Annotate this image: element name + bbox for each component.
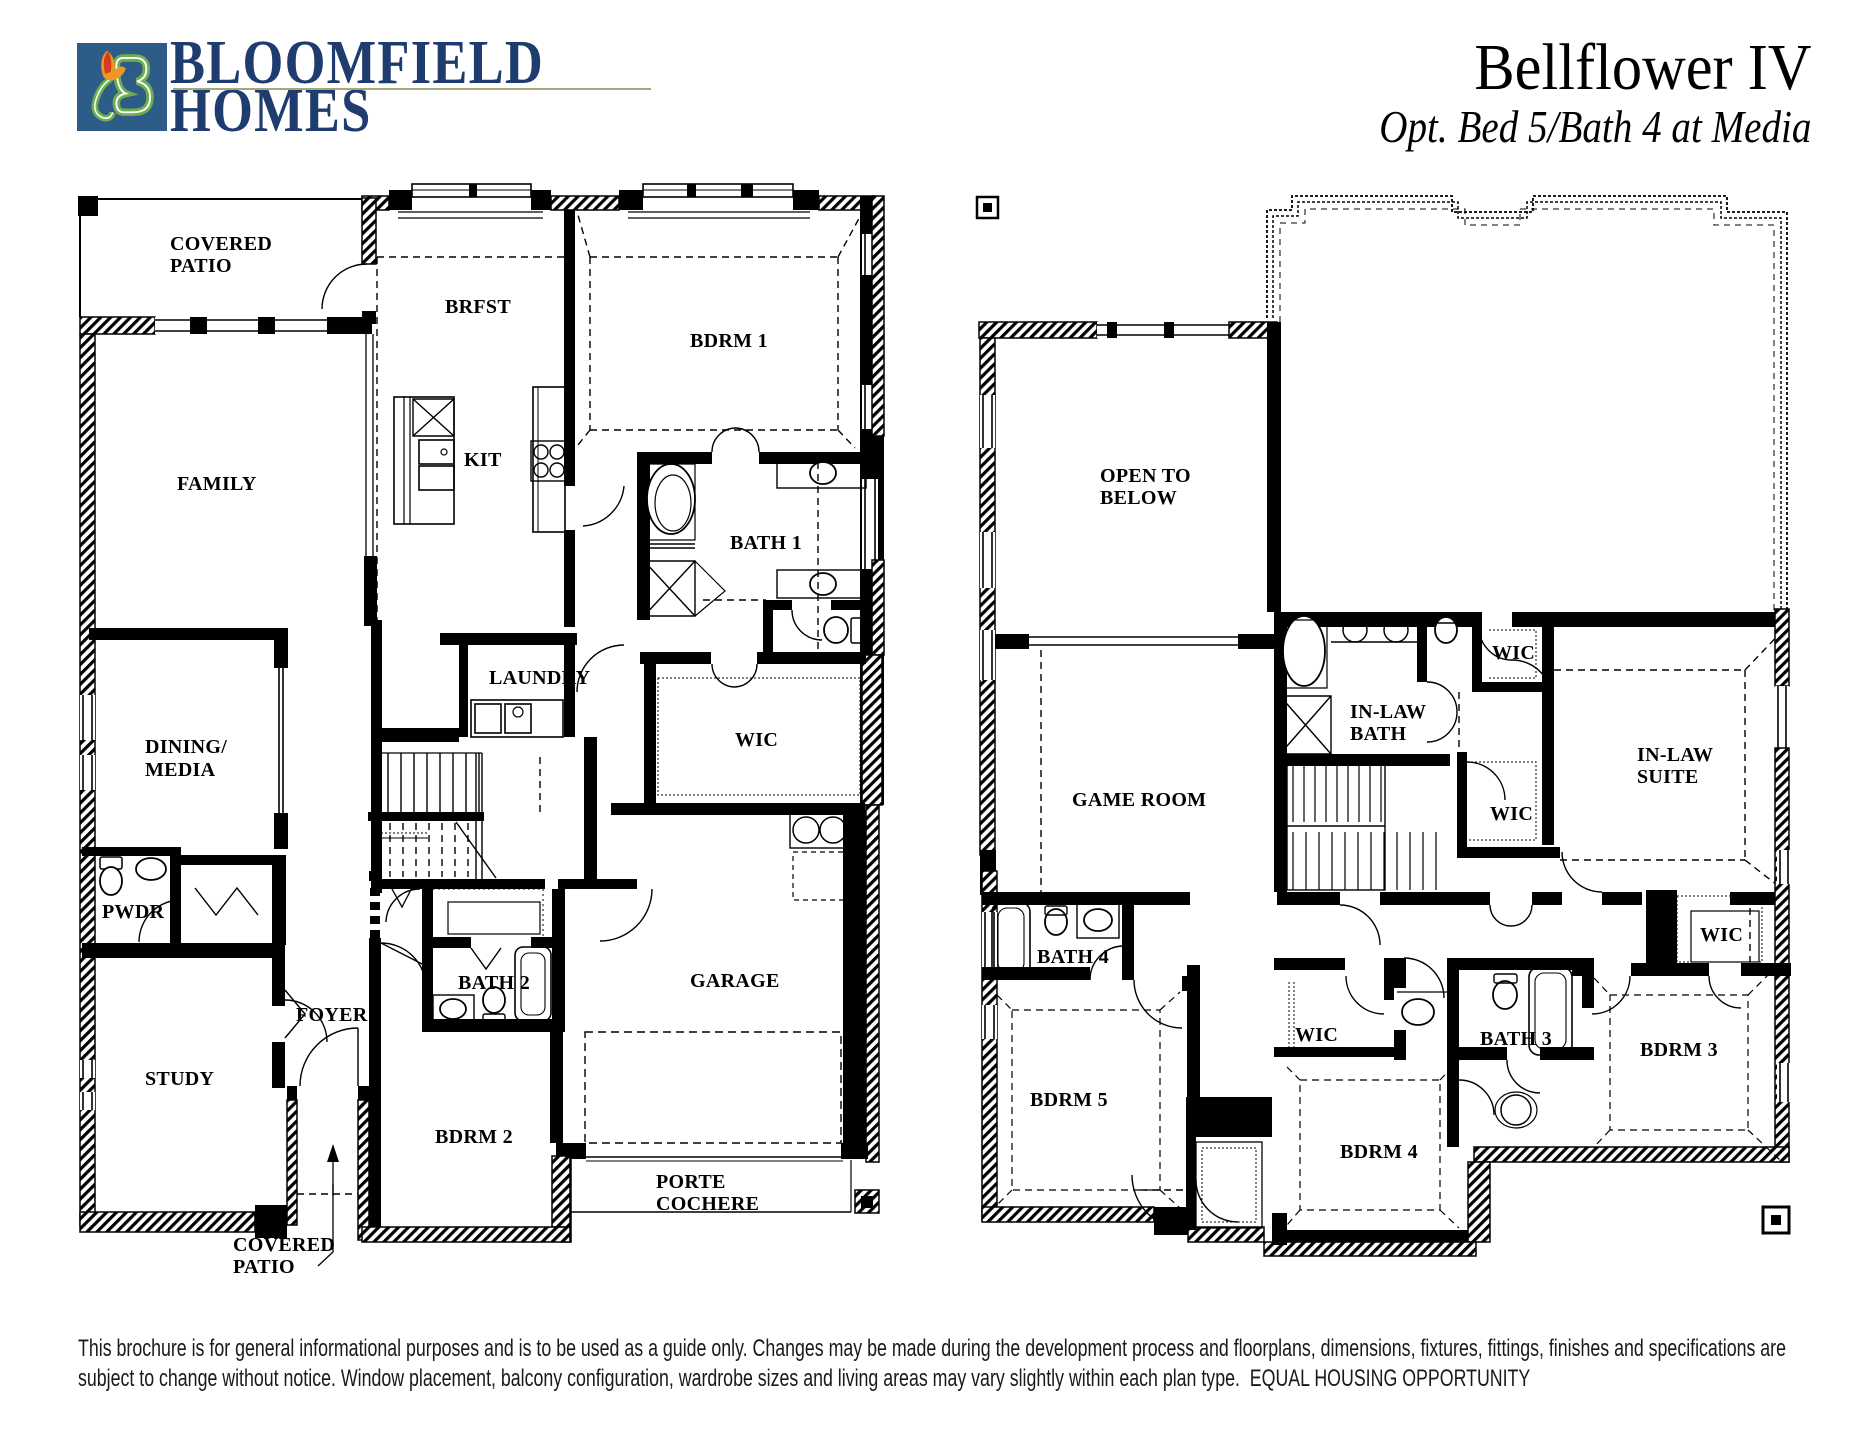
svg-text:LAUNDRY: LAUNDRY (489, 667, 591, 689)
svg-text:WIC: WIC (1295, 1024, 1338, 1046)
svg-text:BRFST: BRFST (445, 296, 511, 318)
svg-text:PORTE: PORTE (656, 1171, 726, 1193)
svg-text:COCHERE: COCHERE (656, 1193, 759, 1215)
svg-text:BATH 1: BATH 1 (730, 532, 802, 554)
svg-text:PATIO: PATIO (170, 255, 232, 277)
svg-text:BATH 2: BATH 2 (458, 972, 530, 994)
svg-text:BDRM 2: BDRM 2 (435, 1126, 513, 1148)
svg-text:IN-LAW: IN-LAW (1350, 701, 1426, 723)
svg-text:COVERED: COVERED (233, 1234, 335, 1256)
svg-text:WIC: WIC (1490, 803, 1533, 825)
svg-text:BDRM 1: BDRM 1 (690, 330, 768, 352)
svg-text:BDRM 5: BDRM 5 (1030, 1089, 1108, 1111)
svg-text:BELOW: BELOW (1100, 487, 1177, 509)
svg-text:DINING/: DINING/ (145, 736, 227, 758)
svg-text:BATH 3: BATH 3 (1480, 1028, 1552, 1050)
svg-text:BDRM 3: BDRM 3 (1640, 1039, 1718, 1061)
svg-text:MEDIA: MEDIA (145, 759, 216, 781)
svg-text:GARAGE: GARAGE (690, 970, 780, 992)
svg-text:BATH: BATH (1350, 723, 1407, 745)
svg-text:SUITE: SUITE (1637, 766, 1699, 788)
svg-text:WIC: WIC (735, 729, 778, 751)
svg-text:FAMILY: FAMILY (177, 473, 257, 495)
svg-text:IN-LAW: IN-LAW (1637, 744, 1713, 766)
svg-text:PATIO: PATIO (233, 1256, 295, 1278)
svg-text:KIT: KIT (464, 449, 502, 471)
svg-text:FOYER: FOYER (296, 1004, 368, 1026)
svg-text:PWDR: PWDR (102, 901, 165, 923)
svg-text:WIC: WIC (1700, 924, 1743, 946)
svg-text:BDRM 4: BDRM 4 (1340, 1141, 1418, 1163)
svg-text:COVERED: COVERED (170, 233, 272, 255)
svg-text:OPEN TO: OPEN TO (1100, 465, 1191, 487)
svg-text:STUDY: STUDY (145, 1068, 215, 1090)
svg-text:GAME ROOM: GAME ROOM (1072, 789, 1206, 811)
